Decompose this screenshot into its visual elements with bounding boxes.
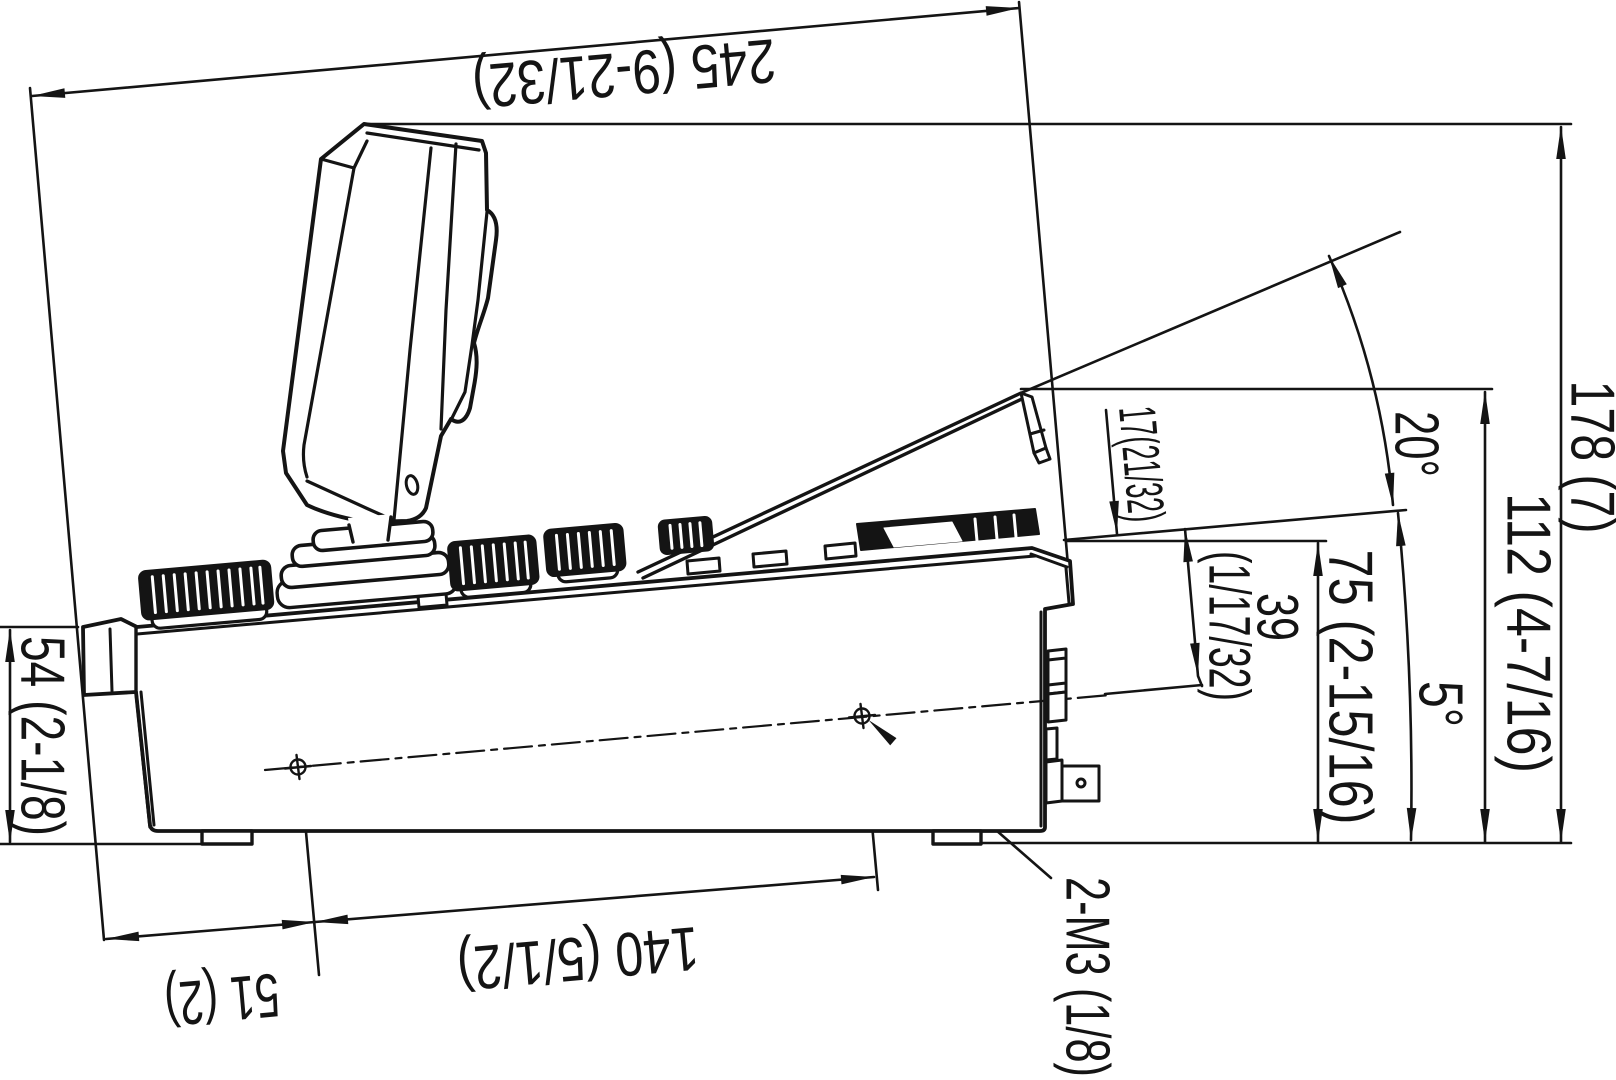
svg-text:112 (4-7/16): 112 (4-7/16) bbox=[1494, 493, 1563, 773]
svg-text:245 (9-21/32): 245 (9-21/32) bbox=[470, 25, 779, 121]
svg-text:140 (5/1/2): 140 (5/1/2) bbox=[454, 913, 701, 1003]
svg-text:(1/17/32): (1/17/32) bbox=[1197, 551, 1262, 701]
svg-text:75 (2-15/16): 75 (2-15/16) bbox=[1316, 550, 1385, 825]
svg-text:54 (2-1/8): 54 (2-1/8) bbox=[8, 636, 77, 836]
svg-text:20°: 20° bbox=[1382, 411, 1451, 477]
svg-text:178 (7): 178 (7) bbox=[1558, 381, 1616, 534]
svg-text:17(21/32): 17(21/32) bbox=[1107, 404, 1175, 525]
svg-text:5°: 5° bbox=[1406, 681, 1475, 727]
svg-text:51 (2): 51 (2) bbox=[162, 960, 283, 1039]
svg-text:2-M3 (1/8): 2-M3 (1/8) bbox=[1053, 877, 1122, 1077]
